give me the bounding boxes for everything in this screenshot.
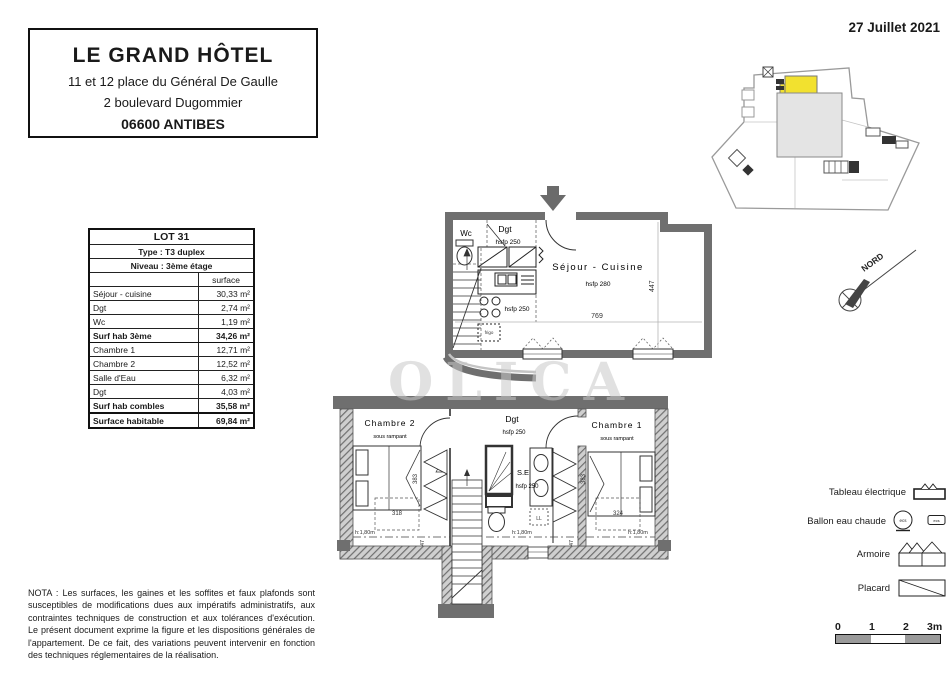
bed-chambre1 [588, 452, 655, 516]
chambre2-label: Chambre 2 [364, 418, 415, 428]
hsfp-label: hsfp 280 [586, 281, 611, 288]
dgt-label: Dgt [498, 224, 512, 234]
north-compass-icon: NORD [818, 238, 938, 328]
entrance-door-swing [546, 220, 576, 250]
city-line: 06600 ANTIBES [30, 116, 316, 132]
core-block [777, 93, 842, 157]
sous-rampant-label: sous rampant [600, 436, 634, 442]
table-row-subtotal: Surf hab 3ème34,26 m² [89, 329, 254, 343]
scale-bar: 0 1 2 3m [833, 621, 943, 644]
legend: Tableau électrique Ballon eau chaude ecs… [790, 478, 948, 604]
door-swing-chambre2 [420, 418, 450, 448]
document-date: 27 Juillet 2021 [740, 20, 940, 35]
washing-machine-label: LL [536, 516, 542, 522]
bed-chambre2 [353, 446, 421, 510]
table-row: Salle d'Eau6,32 m² [89, 371, 254, 385]
height-label: h:1,80m [512, 530, 532, 536]
stair-landing-wall [438, 604, 494, 618]
dim-324: 324 [613, 511, 624, 517]
table-row: Wc1,19 m² [89, 315, 254, 329]
kitchen-units [478, 247, 543, 341]
hsfp-label: hsfp 250 [496, 239, 521, 246]
double-basin [530, 448, 552, 506]
scale-ticks: 0 1 2 3m [833, 621, 943, 633]
legend-item-placard: Placard [790, 572, 948, 604]
table-row: Séjour - cuisine30,33 m² [89, 287, 254, 301]
placard-icon [896, 577, 948, 599]
scale-bar-segments [835, 634, 941, 644]
dim-769: 769 [591, 313, 603, 320]
dim-318: 318 [392, 511, 403, 517]
toilet [456, 240, 473, 265]
fridge-label: frigo [485, 330, 494, 335]
surface-table: LOT 31 Type : T3 duplex Niveau : 3ème ét… [88, 228, 255, 429]
height-label: h:1,80m [628, 530, 648, 536]
legend-item-water-heater: Ballon eau chaude ecs ecs [790, 506, 948, 536]
legend-item-armoire: Armoire [790, 536, 948, 572]
surface-column-header: surface [199, 273, 255, 287]
electrical-panel-icon [912, 483, 948, 501]
svg-text:ecs: ecs [899, 518, 907, 523]
floor-plan-document: LE GRAND HÔTEL 11 et 12 place du Général… [0, 0, 949, 679]
upper-floor-plan: frigo 447 769 Wc Dgt hsfp 250 hsfp 250 S… [440, 183, 737, 380]
toilet [488, 507, 505, 532]
wc-label: Wc [460, 229, 472, 238]
armoire-chambre2 [424, 450, 447, 520]
entrance-arrow-icon [540, 186, 566, 211]
table-row: Dgt2,74 m² [89, 301, 254, 315]
shower [486, 446, 512, 507]
sous-rampant-label: sous rampant [373, 434, 407, 440]
title-block: LE GRAND HÔTEL 11 et 12 place du Général… [28, 28, 318, 138]
dim-447: 447 [649, 280, 656, 292]
hsfp-label: hsfp 250 [505, 306, 530, 313]
dim-383: 383 [413, 473, 419, 484]
north-label: NORD [859, 251, 885, 274]
stairs-upper [453, 248, 481, 350]
se-label: S.E [517, 468, 529, 477]
dim-47: 47 [420, 540, 426, 546]
armoire-icon [896, 540, 948, 568]
door-swing-chambre1 [546, 416, 578, 448]
dgt-label: Dgt [505, 414, 519, 424]
table-row-total: Surface habitable69,84 m² [89, 413, 254, 428]
address-line-2: 2 boulevard Dugommier [30, 95, 316, 110]
height-label: h:1,80m [355, 530, 375, 536]
lot-type: Type : T3 duplex [89, 245, 254, 259]
attic-floor-plan: LL 318 324 [330, 388, 675, 620]
balcony [742, 107, 754, 117]
dim-383: 383 [581, 473, 587, 484]
address-line-1: 11 et 12 place du Général De Gaulle [30, 74, 316, 89]
table-row: Chambre 112,71 m² [89, 343, 254, 357]
chambre1-label: Chambre 1 [591, 420, 642, 430]
nota-disclaimer: NOTA : Les surfaces, les gaines et les s… [28, 587, 315, 661]
highlighted-lot [785, 76, 817, 93]
watermark: OLICA [388, 352, 636, 413]
table-row: Dgt4,03 m² [89, 385, 254, 399]
window [528, 547, 548, 558]
building-name: LE GRAND HÔTEL [30, 44, 316, 68]
sejour-cuisine-label: Séjour - Cuisine [552, 262, 644, 273]
hsfp-label: hsfp 250 [515, 484, 539, 490]
lot-number: LOT 31 [89, 229, 254, 245]
lot-level: Niveau : 3ème étage [89, 259, 254, 273]
table-row: Chambre 212,52 m² [89, 357, 254, 371]
dim-47: 47 [569, 540, 575, 546]
water-heater-icon: ecs ecs [892, 510, 948, 532]
armoire-chambre1 [553, 452, 576, 522]
table-row-subtotal: Surf hab combles35,58 m² [89, 399, 254, 414]
hsfp-label: hsfp 250 [502, 430, 526, 436]
balcony [742, 90, 754, 100]
svg-text:ecs: ecs [933, 518, 939, 523]
legend-item-electrical-panel: Tableau électrique [790, 478, 948, 506]
